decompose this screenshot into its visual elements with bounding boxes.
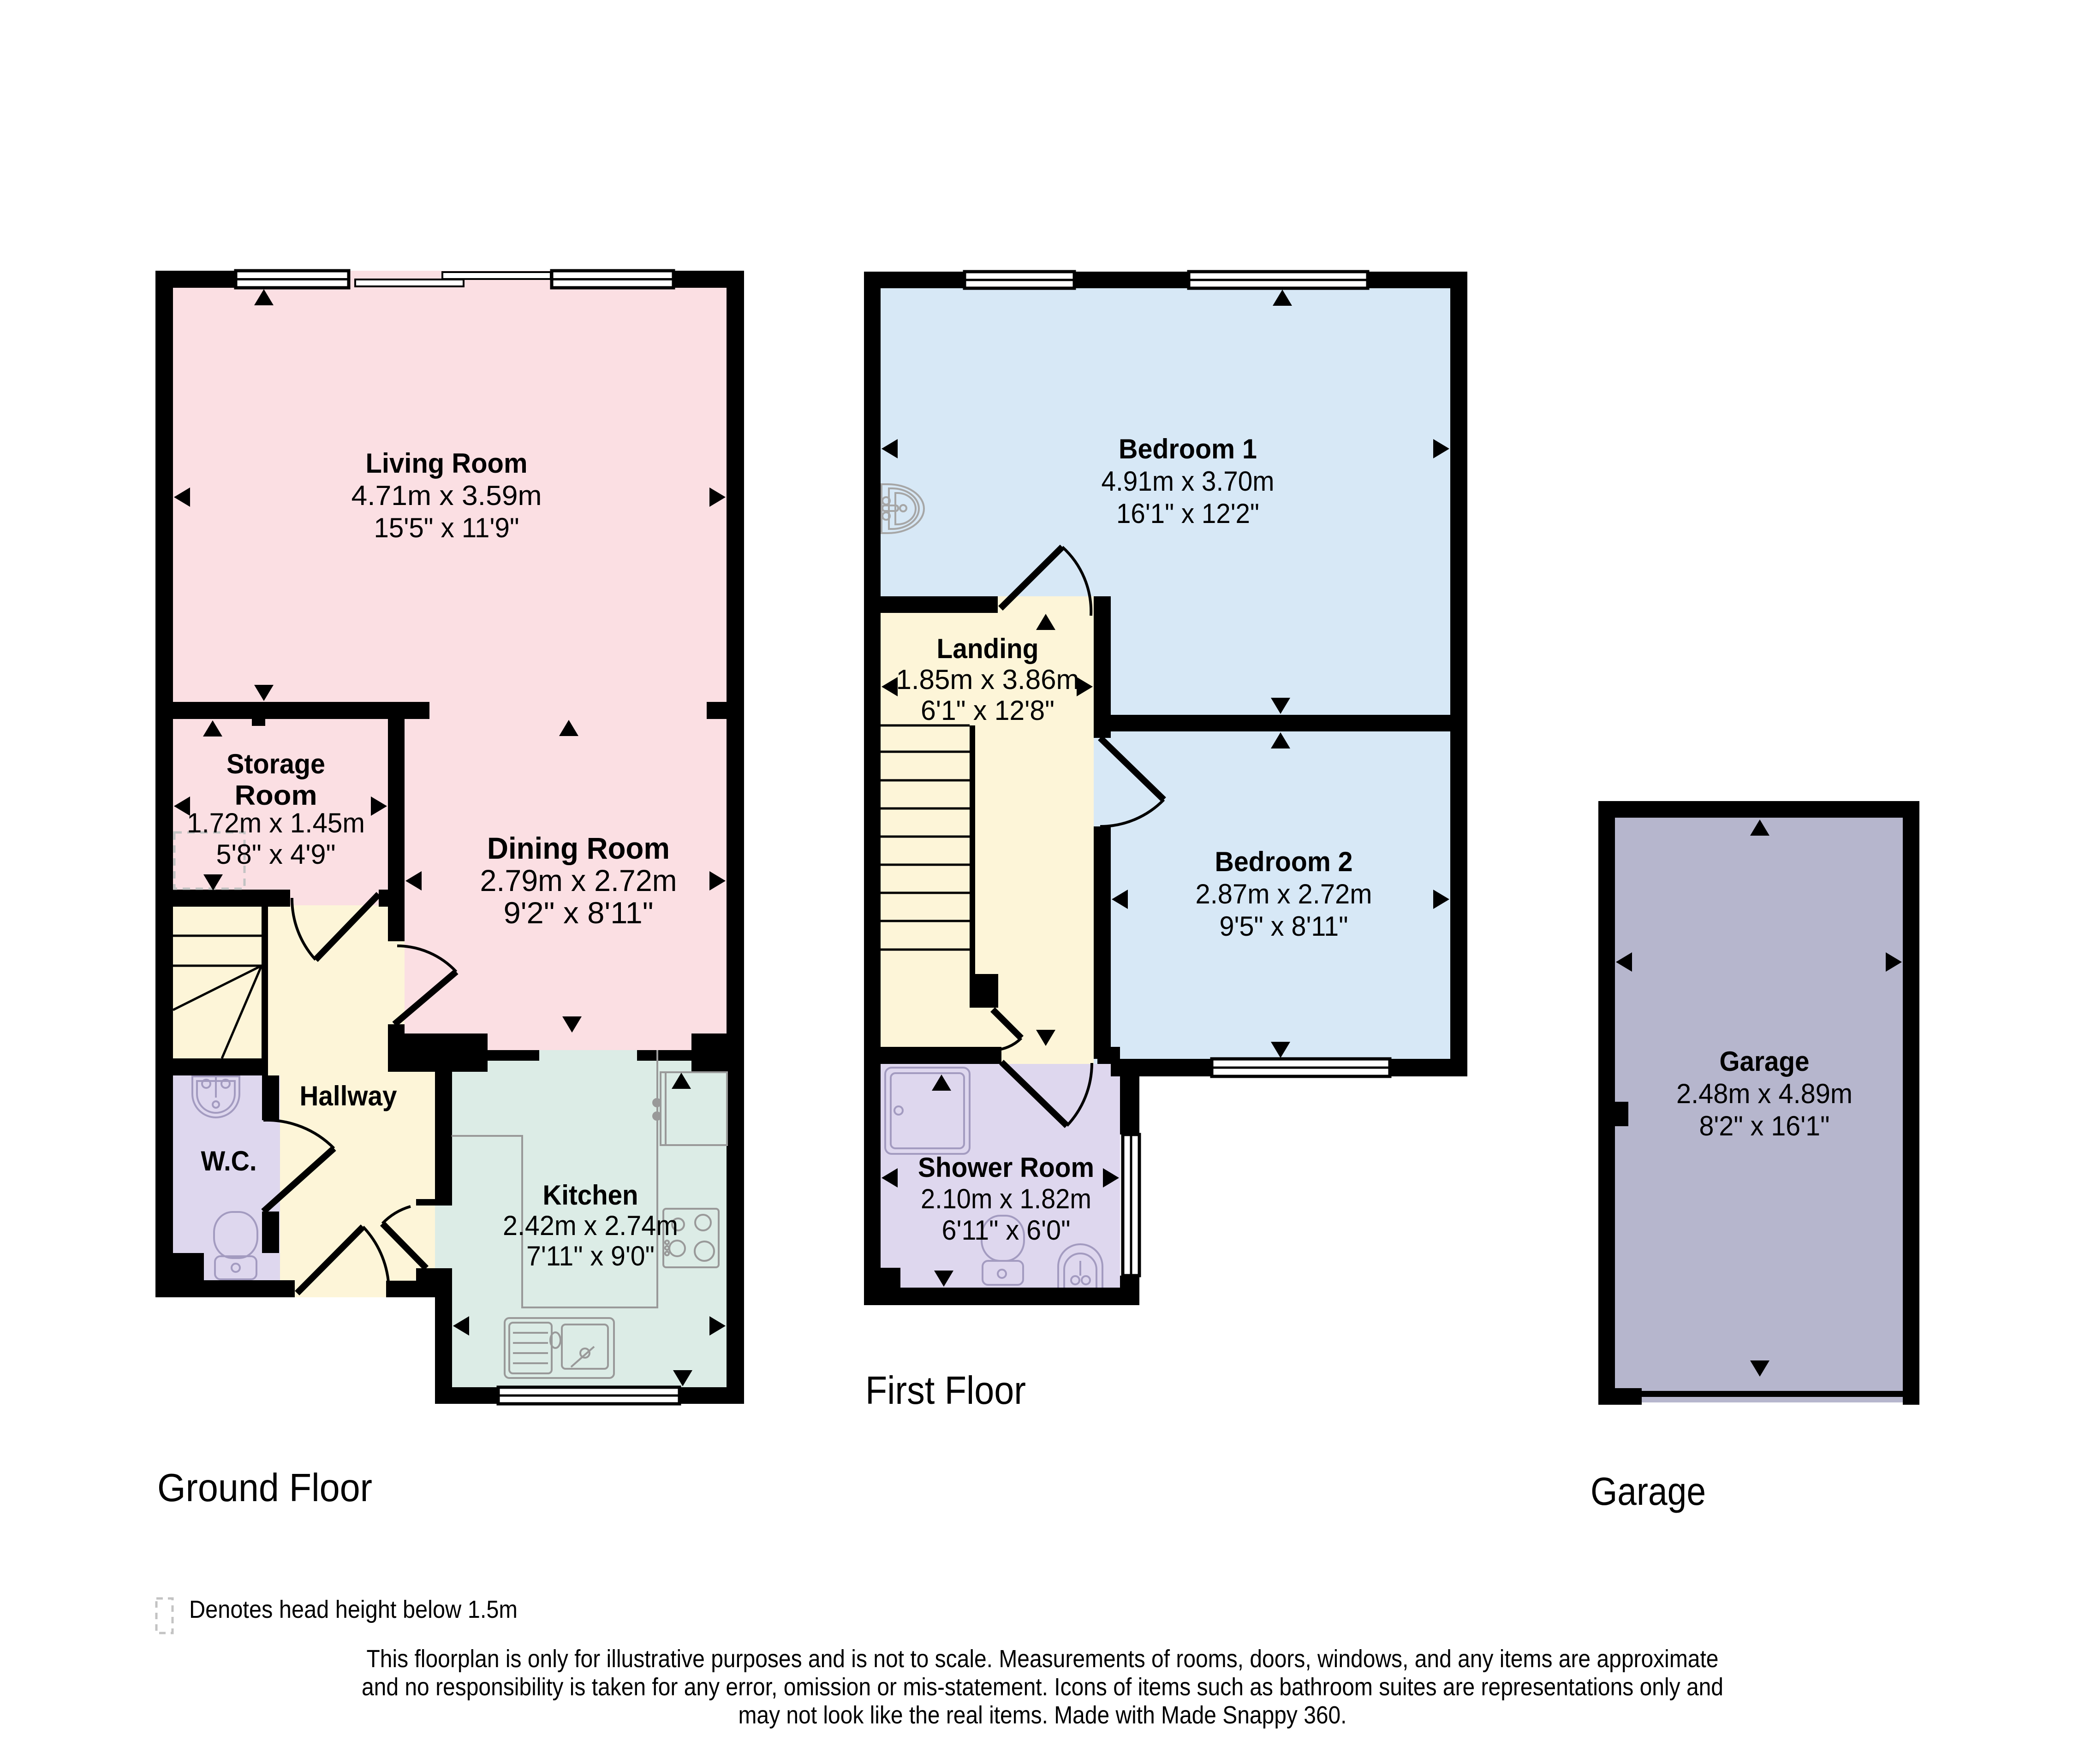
svg-text:2.87m x 2.72m: 2.87m x 2.72m (1196, 879, 1372, 909)
svg-text:2.48m x 4.89m: 2.48m x 4.89m (1676, 1078, 1853, 1109)
svg-text:Garage: Garage (1720, 1046, 1810, 1077)
svg-text:Shower Room: Shower Room (918, 1152, 1094, 1183)
svg-text:may not look like the real ite: may not look like the real items. Made w… (739, 1701, 1347, 1729)
svg-text:2.79m x 2.72m: 2.79m x 2.72m (480, 863, 677, 897)
svg-text:6'11" x 6'0": 6'11" x 6'0" (942, 1215, 1071, 1246)
svg-text:6'1" x 12'8": 6'1" x 12'8" (921, 695, 1054, 726)
svg-text:Landing: Landing (937, 633, 1039, 664)
svg-text:Room: Room (235, 780, 317, 811)
svg-text:8'2" x 16'1": 8'2" x 16'1" (1699, 1111, 1830, 1141)
svg-text:This floorplan is only for ill: This floorplan is only for illustrative … (367, 1645, 1719, 1673)
svg-text:Bedroom 2: Bedroom 2 (1215, 846, 1353, 877)
svg-text:Garage: Garage (1591, 1470, 1706, 1514)
svg-text:Ground Floor: Ground Floor (157, 1466, 372, 1510)
svg-text:2.10m x 1.82m: 2.10m x 1.82m (921, 1183, 1091, 1214)
svg-text:Living Room: Living Room (366, 448, 528, 479)
svg-text:16'1" x 12'2": 16'1" x 12'2" (1116, 498, 1259, 529)
svg-text:Storage: Storage (226, 748, 325, 779)
svg-text:and no responsibility is taken: and no responsibility is taken for any e… (362, 1673, 1723, 1701)
svg-text:4.91m x 3.70m: 4.91m x 3.70m (1102, 466, 1275, 497)
svg-text:5'8" x 4'9": 5'8" x 4'9" (216, 839, 336, 870)
svg-text:9'5" x 8'11": 9'5" x 8'11" (1220, 911, 1348, 942)
svg-text:1.85m x 3.86m: 1.85m x 3.86m (896, 664, 1079, 695)
svg-text:9'2" x 8'11": 9'2" x 8'11" (504, 896, 654, 930)
svg-text:7'11" x 9'0": 7'11" x 9'0" (526, 1241, 655, 1271)
svg-text:Denotes head height below 1.5m: Denotes head height below 1.5m (189, 1596, 518, 1623)
svg-text:Dining Room: Dining Room (487, 831, 670, 865)
svg-text:First Floor: First Floor (865, 1369, 1026, 1413)
svg-text:W.C.: W.C. (201, 1146, 257, 1176)
svg-text:Bedroom 1: Bedroom 1 (1119, 434, 1257, 464)
svg-text:15'5" x 11'9": 15'5" x 11'9" (374, 512, 519, 543)
svg-text:Kitchen: Kitchen (543, 1180, 638, 1211)
svg-text:4.71m x 3.59m: 4.71m x 3.59m (351, 480, 542, 511)
svg-text:1.72m x 1.45m: 1.72m x 1.45m (187, 808, 365, 838)
svg-text:Hallway: Hallway (300, 1081, 398, 1111)
svg-text:2.42m x 2.74m: 2.42m x 2.74m (503, 1210, 678, 1241)
